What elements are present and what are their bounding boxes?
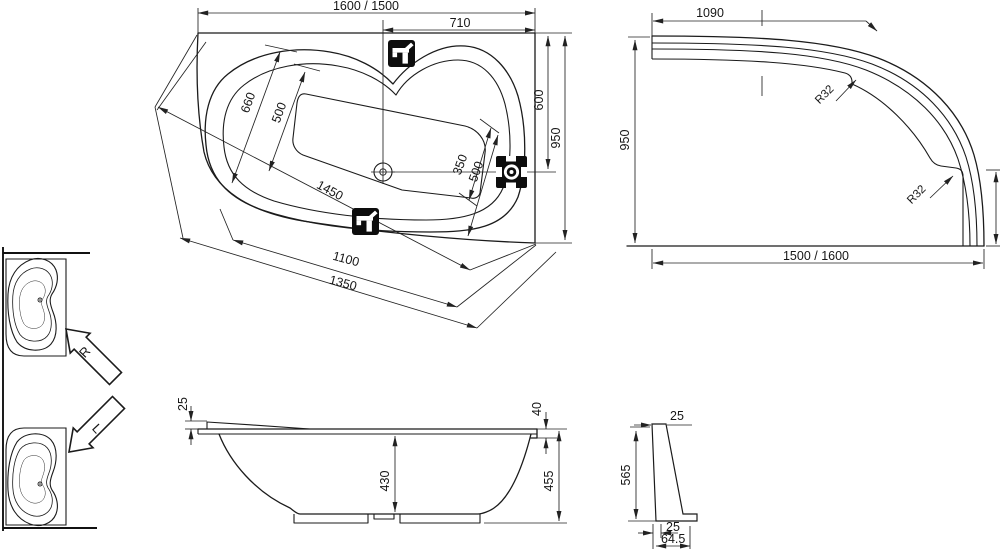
dim-tap-offset: 710 bbox=[450, 16, 471, 30]
dim-rim-rise: 25 bbox=[176, 397, 190, 411]
dim-apron-width: 950 bbox=[618, 130, 632, 151]
tub-inner-rim bbox=[223, 60, 510, 220]
dim-top-thickness: 25 bbox=[670, 409, 684, 423]
dim-head-end-width: 600 bbox=[532, 90, 546, 111]
dim-foot-width-inner: 500 bbox=[269, 100, 289, 124]
variant-right-thumbnail bbox=[6, 258, 66, 356]
apron-section-view: 25 565 25 64.5 bbox=[619, 409, 697, 549]
dim-base-depth: 64.5 bbox=[661, 532, 685, 546]
elevation-dimension-lines bbox=[185, 406, 567, 523]
plan-view: 1600 / 1500 710 660 500 600 950 350 500 … bbox=[155, 0, 572, 328]
apron-plan-view: 1090 950 R32 R32 1500 / 1600 bbox=[618, 6, 1000, 269]
dim-total-height: 455 bbox=[542, 471, 556, 492]
dim-apron-length: 1500 / 1600 bbox=[783, 249, 849, 263]
dim-diagonal-length: 1450 bbox=[314, 178, 345, 203]
dim-straight-section: 1090 bbox=[696, 6, 724, 20]
variant-left-thumbnail bbox=[6, 428, 66, 526]
technical-drawing-bathtub: 1600 / 1500 710 660 500 600 950 350 500 … bbox=[0, 0, 1000, 549]
dim-overall-width: 950 bbox=[549, 128, 563, 149]
dim-rim-lip: 40 bbox=[530, 402, 544, 416]
variant-icons: R L bbox=[3, 247, 128, 531]
dim-radius-lower: R32 bbox=[905, 183, 928, 206]
apron-profile bbox=[652, 424, 697, 521]
dim-inner-depth: 430 bbox=[378, 471, 392, 492]
dim-foot-width-outer: 660 bbox=[238, 90, 258, 114]
faucet-icon bbox=[352, 208, 379, 235]
dim-apron-height: 565 bbox=[619, 465, 633, 486]
dim-radius-upper: R32 bbox=[813, 83, 836, 106]
arrow-down-left-icon: L bbox=[59, 393, 128, 462]
dim-bottom-length-inner: 1100 bbox=[331, 249, 361, 269]
water-inlet-icon bbox=[496, 156, 527, 188]
faucet-icon bbox=[388, 40, 415, 67]
side-elevation-view: 25 40 430 455 bbox=[176, 397, 567, 523]
dim-overall-length: 1600 / 1500 bbox=[333, 0, 399, 13]
